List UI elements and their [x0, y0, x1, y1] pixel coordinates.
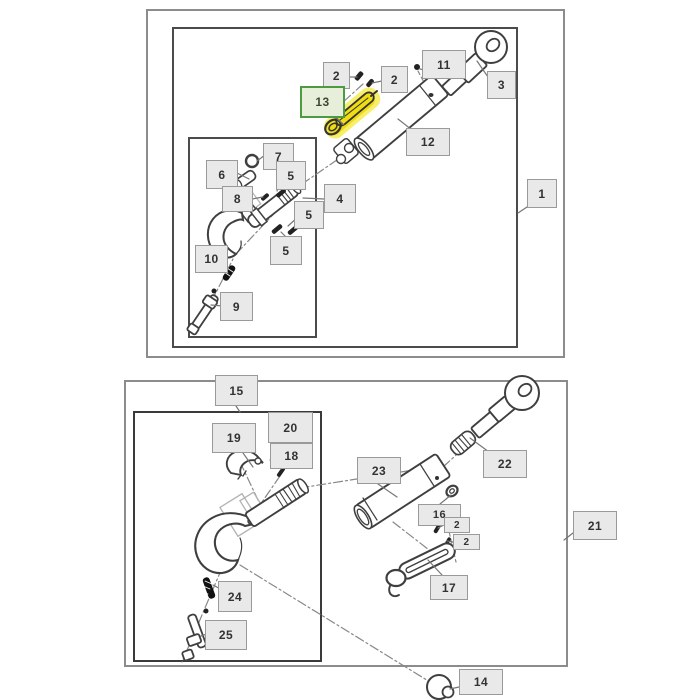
- callout-part-25[interactable]: 25: [205, 620, 247, 650]
- callout-part-4[interactable]: 4: [324, 184, 356, 213]
- callout-part-2[interactable]: 2: [453, 534, 480, 550]
- callout-part-20[interactable]: 20: [268, 412, 313, 443]
- callout-part-2[interactable]: 2: [444, 517, 470, 533]
- callout-part-3[interactable]: 3: [487, 71, 516, 99]
- callout-part-14[interactable]: 14: [459, 669, 503, 695]
- callout-part-17[interactable]: 17: [430, 575, 468, 600]
- callout-part-15[interactable]: 15: [215, 375, 258, 406]
- part-22-drawing[interactable]: [448, 376, 539, 457]
- callout-part-24[interactable]: 24: [218, 581, 252, 612]
- callout-part-5[interactable]: 5: [270, 236, 302, 265]
- diagram-artwork: [0, 0, 700, 700]
- part-14-drawing[interactable]: [427, 675, 454, 699]
- callout-part-2[interactable]: 2: [323, 62, 350, 89]
- callout-part-6[interactable]: 6: [206, 160, 238, 189]
- callout-part-5[interactable]: 5: [294, 201, 324, 229]
- part-9-drawing[interactable]: [187, 289, 219, 336]
- callout-part-19[interactable]: 19: [212, 423, 256, 453]
- callout-part-12[interactable]: 12: [406, 128, 450, 156]
- callout-part-13-selected[interactable]: 13: [300, 86, 345, 118]
- bottom-hook-drawing[interactable]: [195, 477, 310, 573]
- callout-part-21[interactable]: 21: [573, 511, 617, 540]
- parts-diagram-page: 2211313127658455109115192018222316221721…: [0, 0, 700, 700]
- callout-part-1[interactable]: 1: [527, 179, 557, 208]
- callout-part-10[interactable]: 10: [195, 245, 228, 273]
- part-7-drawing[interactable]: [246, 155, 258, 167]
- callout-part-2[interactable]: 2: [381, 66, 408, 93]
- callout-part-22[interactable]: 22: [483, 450, 527, 478]
- callout-part-23[interactable]: 23: [357, 457, 401, 484]
- part-16-drawing[interactable]: [444, 483, 459, 498]
- callout-part-9[interactable]: 9: [220, 292, 253, 321]
- callout-part-18[interactable]: 18: [270, 443, 313, 469]
- callout-part-5[interactable]: 5: [276, 161, 306, 190]
- bottom-leader-lines: [201, 406, 573, 689]
- callout-part-8[interactable]: 8: [222, 186, 253, 212]
- callout-part-11[interactable]: 11: [422, 50, 466, 79]
